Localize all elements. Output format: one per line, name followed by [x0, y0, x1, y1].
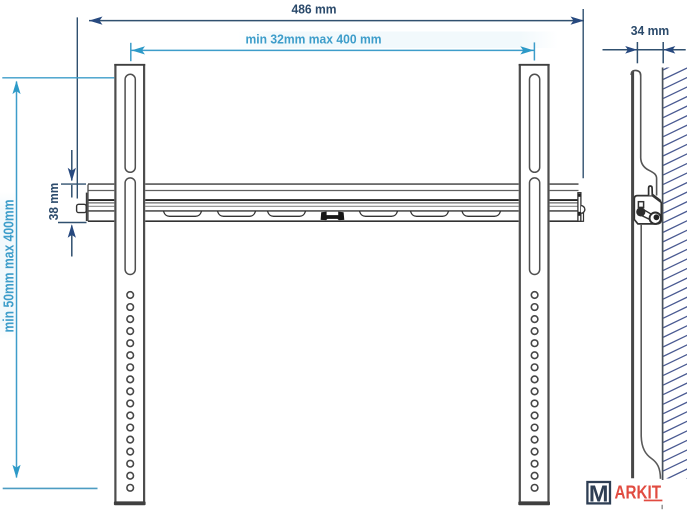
svg-text:min 50mm max 400mm: min 50mm max 400mm — [1, 200, 18, 333]
svg-text:38 mm: 38 mm — [46, 183, 61, 221]
svg-text:34 mm: 34 mm — [631, 23, 670, 38]
svg-text:486 mm: 486 mm — [292, 1, 337, 16]
svg-text:min 32mm max 400 mm: min 32mm max 400 mm — [246, 32, 382, 47]
svg-text:M: M — [589, 481, 609, 507]
